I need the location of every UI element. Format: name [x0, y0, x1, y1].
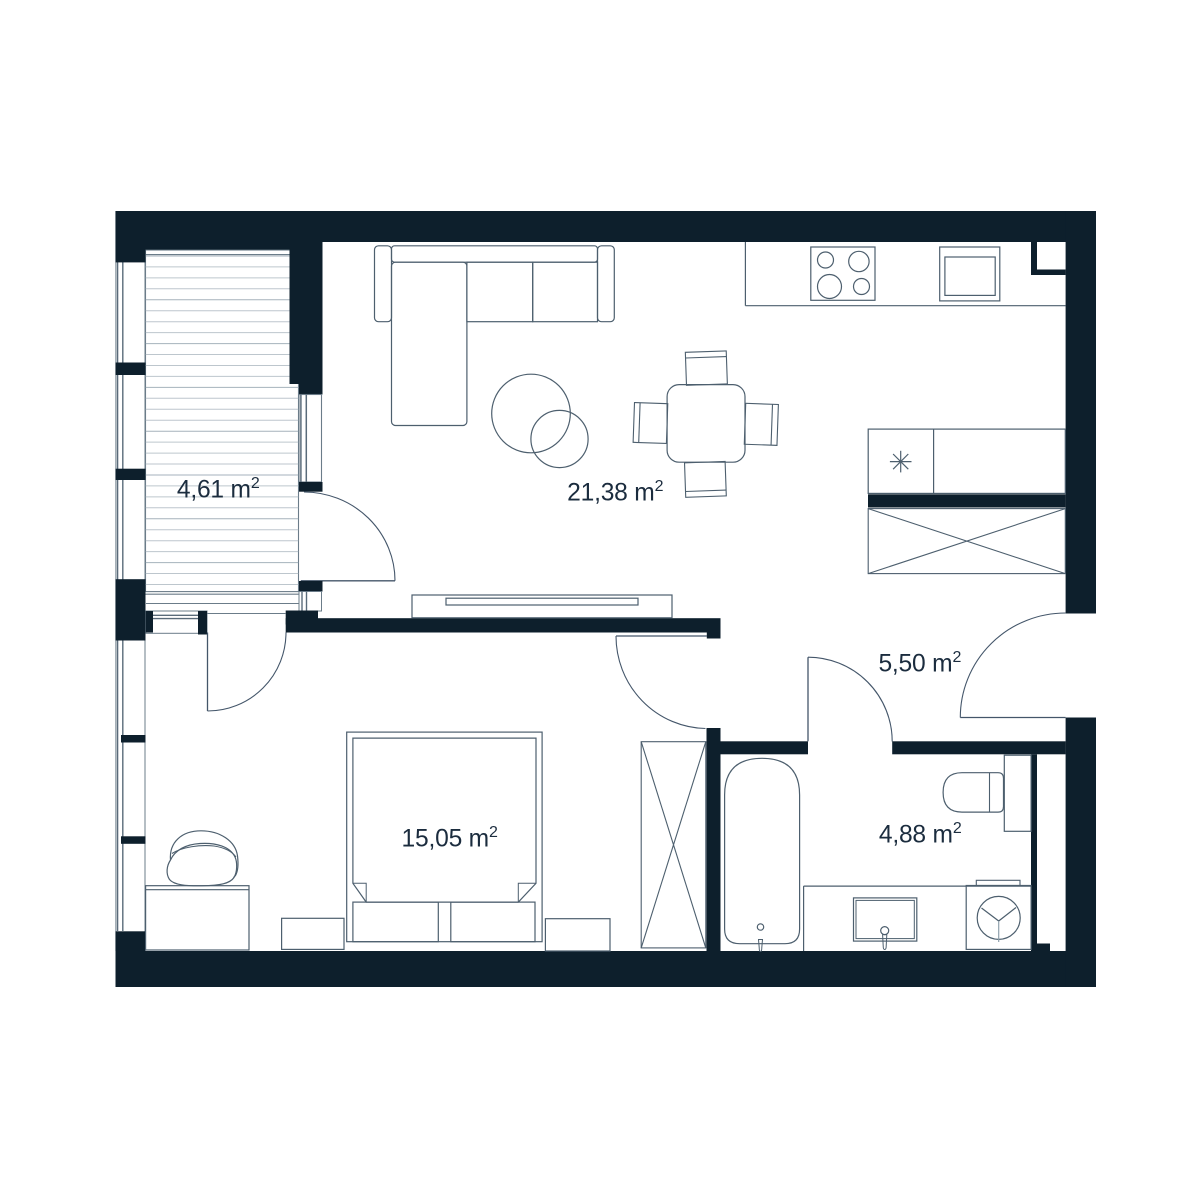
svg-text:5,50 m2: 5,50 m2: [878, 649, 961, 678]
svg-text:4,88 m2: 4,88 m2: [879, 820, 962, 849]
svg-text:15,05 m2: 15,05 m2: [402, 824, 498, 853]
svg-text:21,38 m2: 21,38 m2: [567, 478, 663, 507]
svg-text:4,61 m2: 4,61 m2: [177, 475, 260, 504]
